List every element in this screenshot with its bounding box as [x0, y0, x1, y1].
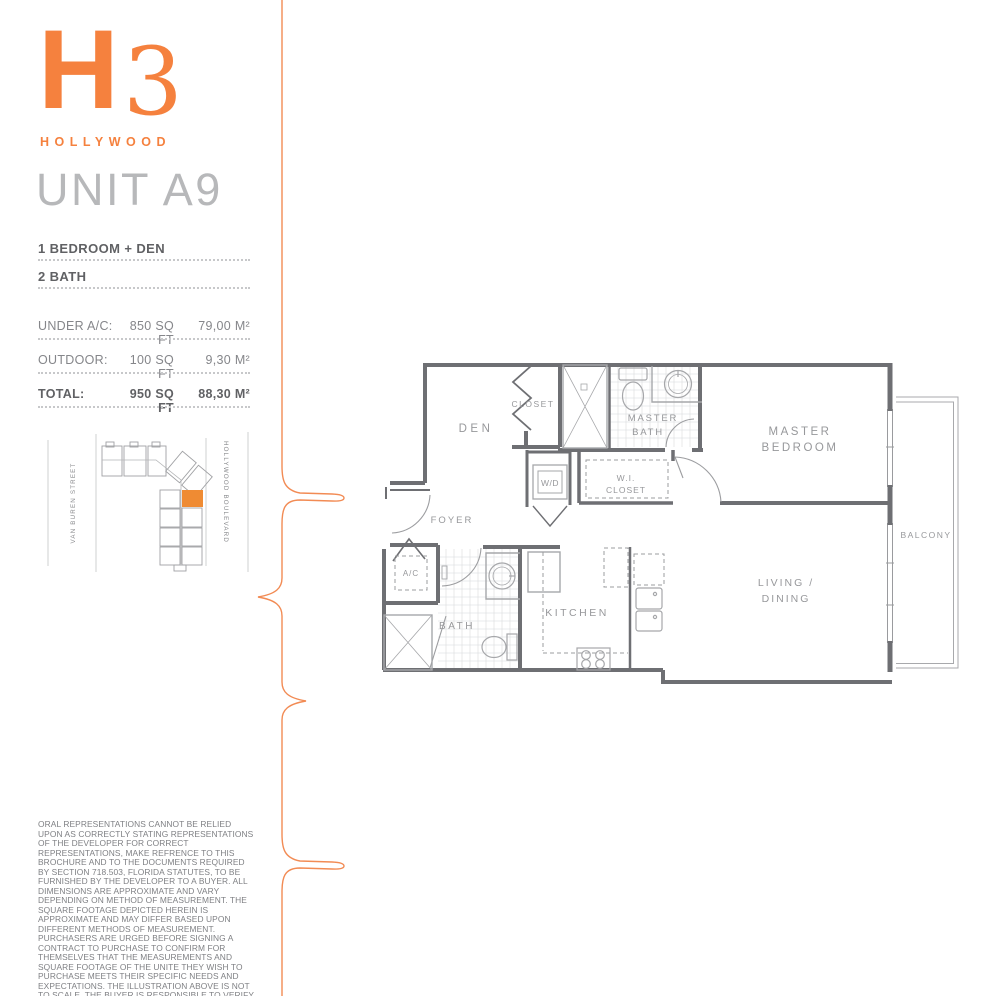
logo-h: H [38, 14, 119, 126]
counter-edge-dashed [543, 552, 628, 653]
label-ac: A/C [403, 569, 419, 578]
entry-door-arc [392, 495, 430, 533]
entry-door-chevron [393, 539, 425, 561]
legal-disclaimer: ORAL REPRESENTATIONS CANNOT BE RELIED UP… [38, 820, 255, 996]
label-master-bedroom-1: MASTER [769, 426, 832, 438]
label-master-bedroom-2: BEDROOM [762, 442, 839, 454]
feature-bath: 2 BATH [38, 269, 86, 284]
brand-name: HOLLYWOOD [40, 135, 171, 149]
area-sqft: 950 SQ FT [122, 387, 174, 415]
kitchen-counter [528, 552, 560, 592]
logo-3: 3 [123, 36, 183, 130]
street-label-left: VAN BUREN STREET [70, 463, 77, 544]
area-sqm: 79,00 M² [174, 319, 250, 347]
kitchen-sink-basin-2 [636, 611, 662, 631]
street-label-right: HOLLYWOOD BOULEVARD [222, 441, 229, 543]
area-label: OUTDOOR: [38, 353, 122, 381]
label-wi-closet-2: CLOSET [606, 485, 646, 495]
label-kitchen: KITCHEN [545, 607, 609, 619]
shower-drain [581, 384, 587, 390]
label-master-bath-1: MASTER [628, 413, 678, 424]
site-key-plan: VAN BUREN STREET HOLLYWOOD BOULEVARD [36, 430, 251, 575]
label-balcony: BALCONY [900, 530, 951, 540]
highlighted-unit [182, 490, 203, 507]
label-bath: BATH [439, 621, 475, 632]
feature-bedroom: 1 BEDROOM + DEN [38, 241, 165, 256]
vanity-master [652, 366, 702, 402]
toilet-tank [507, 634, 517, 660]
kitchen-sink-basin-1 [636, 588, 662, 609]
door-symbols [393, 366, 567, 561]
area-sqft: 100 SQ FT [122, 353, 174, 381]
label-foyer: FOYER [431, 515, 474, 526]
closet-bifold-zigzag [513, 366, 531, 430]
area-label: UNDER A/C: [38, 319, 122, 347]
bath-door-arc [442, 548, 481, 586]
brochure-page: H 3 HOLLYWOOD UNIT A9 1 BEDROOM + DEN 2 … [0, 0, 996, 996]
wd-door-chevron [533, 506, 567, 526]
window-lines [886, 409, 894, 643]
label-living-1: LIVING / [758, 577, 814, 589]
tile-grid-bath [438, 549, 520, 669]
area-label: TOTAL: [38, 387, 122, 415]
area-sqm: 9,30 M² [174, 353, 250, 381]
area-sqft: 850 SQ FT [122, 319, 174, 347]
label-living-2: DINING [762, 593, 811, 605]
label-master-bath-2: BATH [632, 427, 664, 438]
dotted-divider [38, 287, 250, 289]
label-wd: W/D [541, 478, 559, 488]
bedroom-door-leaf [675, 457, 683, 478]
label-den: DEN [459, 423, 494, 435]
dotted-divider [38, 372, 250, 374]
dotted-divider [38, 338, 250, 340]
fridge-dashed [634, 554, 664, 585]
label-closet: CLOSET [511, 399, 554, 409]
label-wi-closet-1: W.I. [617, 473, 636, 483]
counter-return-dashed [604, 548, 628, 587]
dotted-divider [38, 406, 250, 408]
unit-title: UNIT A9 [36, 164, 223, 216]
area-row-under-ac: UNDER A/C: 850 SQ FT 79,00 M² [38, 319, 250, 347]
floor-plan: DEN CLOSET MASTER BATH MASTER BEDROOM W/… [380, 335, 980, 695]
bedroom-door-arc [675, 457, 721, 502]
area-sqm: 88,30 M² [174, 387, 250, 415]
area-row-total: TOTAL: 950 SQ FT 88,30 M² [38, 387, 250, 415]
dotted-divider [38, 259, 250, 261]
area-row-outdoor: OUTDOOR: 100 SQ FT 9,30 M² [38, 353, 250, 381]
